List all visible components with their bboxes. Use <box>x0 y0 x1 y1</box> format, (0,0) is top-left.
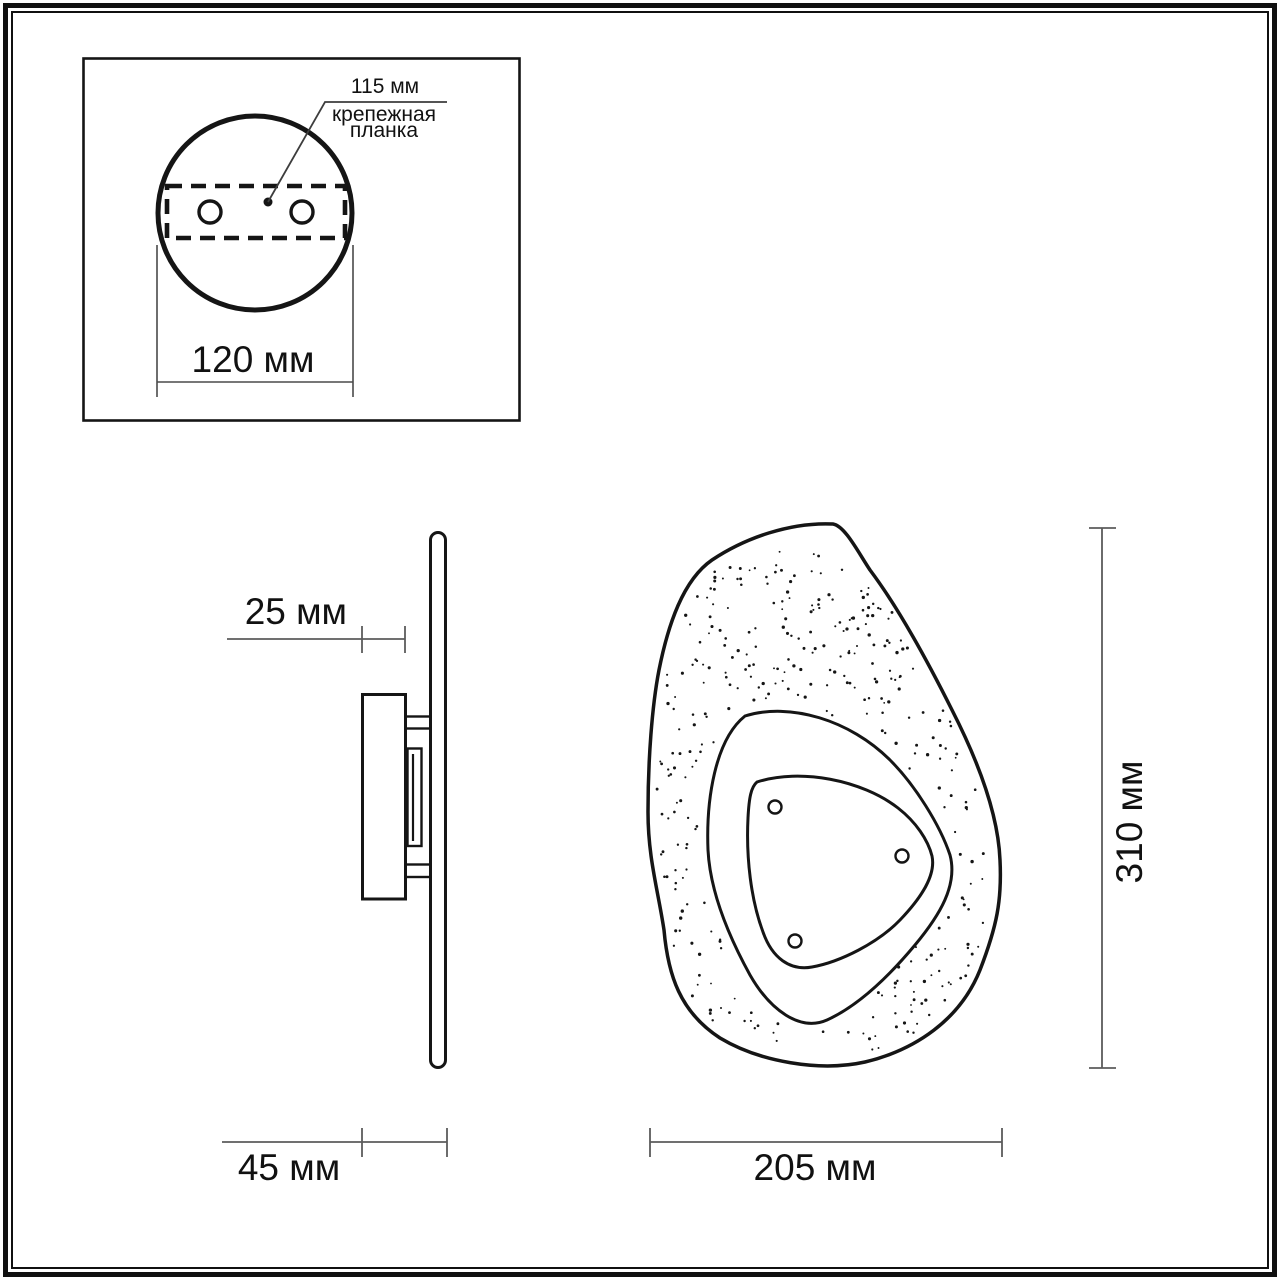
led-hole-right <box>896 850 909 863</box>
bracket-tab-top <box>404 717 432 729</box>
drawing-canvas <box>0 0 1280 1280</box>
front-view <box>648 524 1116 1157</box>
base-diameter-label: 120 мм <box>155 340 351 380</box>
technical-drawing-page: 115 мм крепежная планка 120 мм 25 мм 45 … <box>0 0 1280 1280</box>
mount-box <box>363 695 406 900</box>
bracket-tab-bottom <box>404 865 432 878</box>
screw-hole-left <box>199 201 221 223</box>
plate-depth-label: 25 мм <box>147 592 347 632</box>
led-hole-top <box>769 801 782 814</box>
front-height-label: 310 мм <box>1108 722 1152 922</box>
total-depth-label: 45 мм <box>189 1148 389 1188</box>
mount-bar-label: крепежная планка <box>284 107 484 139</box>
panel-edge <box>431 533 446 1068</box>
hole-spacing-label: 115 мм <box>285 75 485 99</box>
mounting-bar-dashed-rect <box>167 186 345 238</box>
driver-bracket <box>408 749 422 847</box>
screw-hole-right <box>291 201 313 223</box>
backplate-circle <box>158 116 352 310</box>
mount-bar-label-line2: планка <box>284 123 484 139</box>
led-hole-bottom <box>789 935 802 948</box>
front-width-label: 205 мм <box>705 1148 925 1188</box>
